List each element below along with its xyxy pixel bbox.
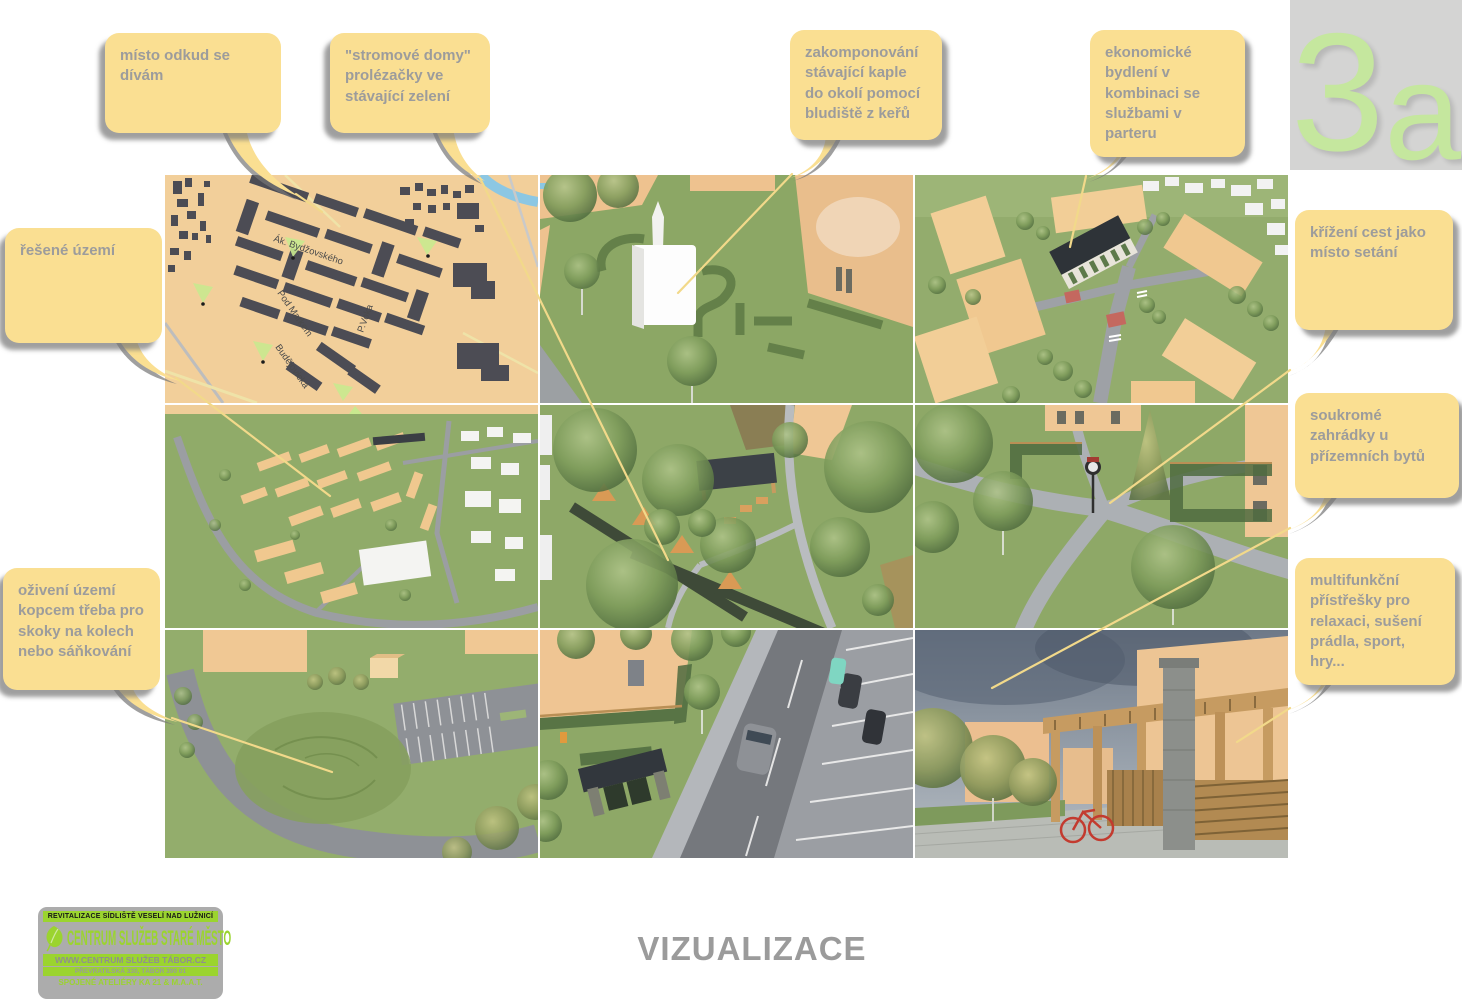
render-wooden-shelter [915, 630, 1288, 858]
callout-crossing: křížení cest jako místo setání [1295, 210, 1453, 330]
page-title: VIZUALIZACE [552, 930, 952, 968]
render-aerial-housing [915, 175, 1288, 403]
render-chapel-maze [540, 175, 913, 403]
render-site-map: Ák. Bydžovského Pod Markem P.Voka Budějo… [165, 175, 538, 403]
hill [235, 712, 411, 824]
presentation-board: Ák. Bydžovského Pod Markem P.Voka Budějo… [0, 0, 1462, 1000]
leaf-icon [43, 924, 65, 952]
callout-economic: ekonomické bydlení v kombinaci se služba… [1090, 30, 1245, 157]
project-title: REVITALIZACE SÍDLIŠTĚ VESELÍ NAD LUŽNICÍ [43, 911, 218, 922]
sheet-number-digit: 3 [1291, 15, 1384, 170]
chimney [1159, 658, 1199, 850]
callout-chapel: zakomponování stávající kaple do okolí p… [790, 30, 942, 140]
callout-gardens: soukromé zahrádky u přízemních bytů [1295, 393, 1459, 498]
studio-address: PŘEVRATILSKÁ 330, TÁBOR 390 01 [43, 967, 218, 976]
callout-viewpoint: místo odkud se dívám [105, 33, 281, 133]
render-street-parking [540, 630, 913, 858]
studio-partners: SPOJENÉ ATELIÉRY KA 21 & M.A.A.T. [43, 976, 218, 987]
studio-name: CENTRUM SLUŽEB STARÉ MĚSTO [67, 926, 231, 951]
studio-logo: REVITALIZACE SÍDLIŠTĚ VESELÍ NAD LUŽNICÍ… [38, 907, 223, 999]
callout-shelters: multifunkční přístřešky pro relaxaci, su… [1295, 558, 1455, 685]
sheet-number: 3a [1290, 0, 1462, 170]
callout-hill: oživení území kopcem třeba pro skoky na … [3, 568, 160, 690]
render-district-overview [165, 405, 538, 628]
render-path-crossing [915, 405, 1288, 628]
callout-area: řešené území [5, 228, 162, 343]
callout-tree-houses: "stromové domy" prolézačky ve stávající … [330, 33, 490, 133]
sheet-number-letter: a [1384, 49, 1461, 170]
render-playground [540, 405, 913, 628]
render-hill-lawn [165, 630, 538, 858]
studio-website: WWW.CENTRUM SLUŽEB TÁBOR.CZ [43, 954, 218, 966]
